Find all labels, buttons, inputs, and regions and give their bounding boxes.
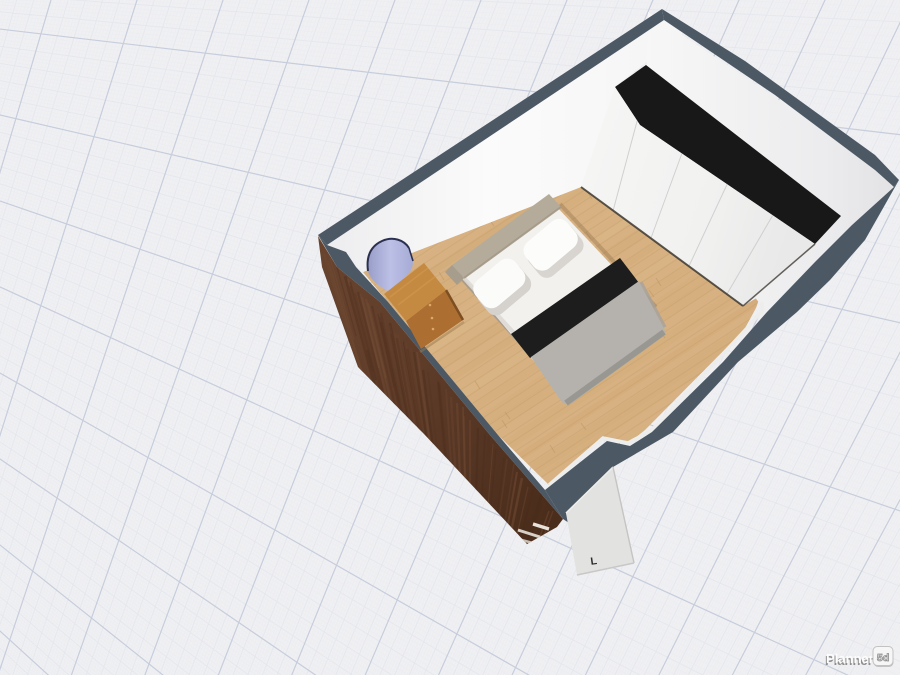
svg-text:Planner: Planner [826,651,874,666]
svg-text:5d: 5d [877,652,889,664]
